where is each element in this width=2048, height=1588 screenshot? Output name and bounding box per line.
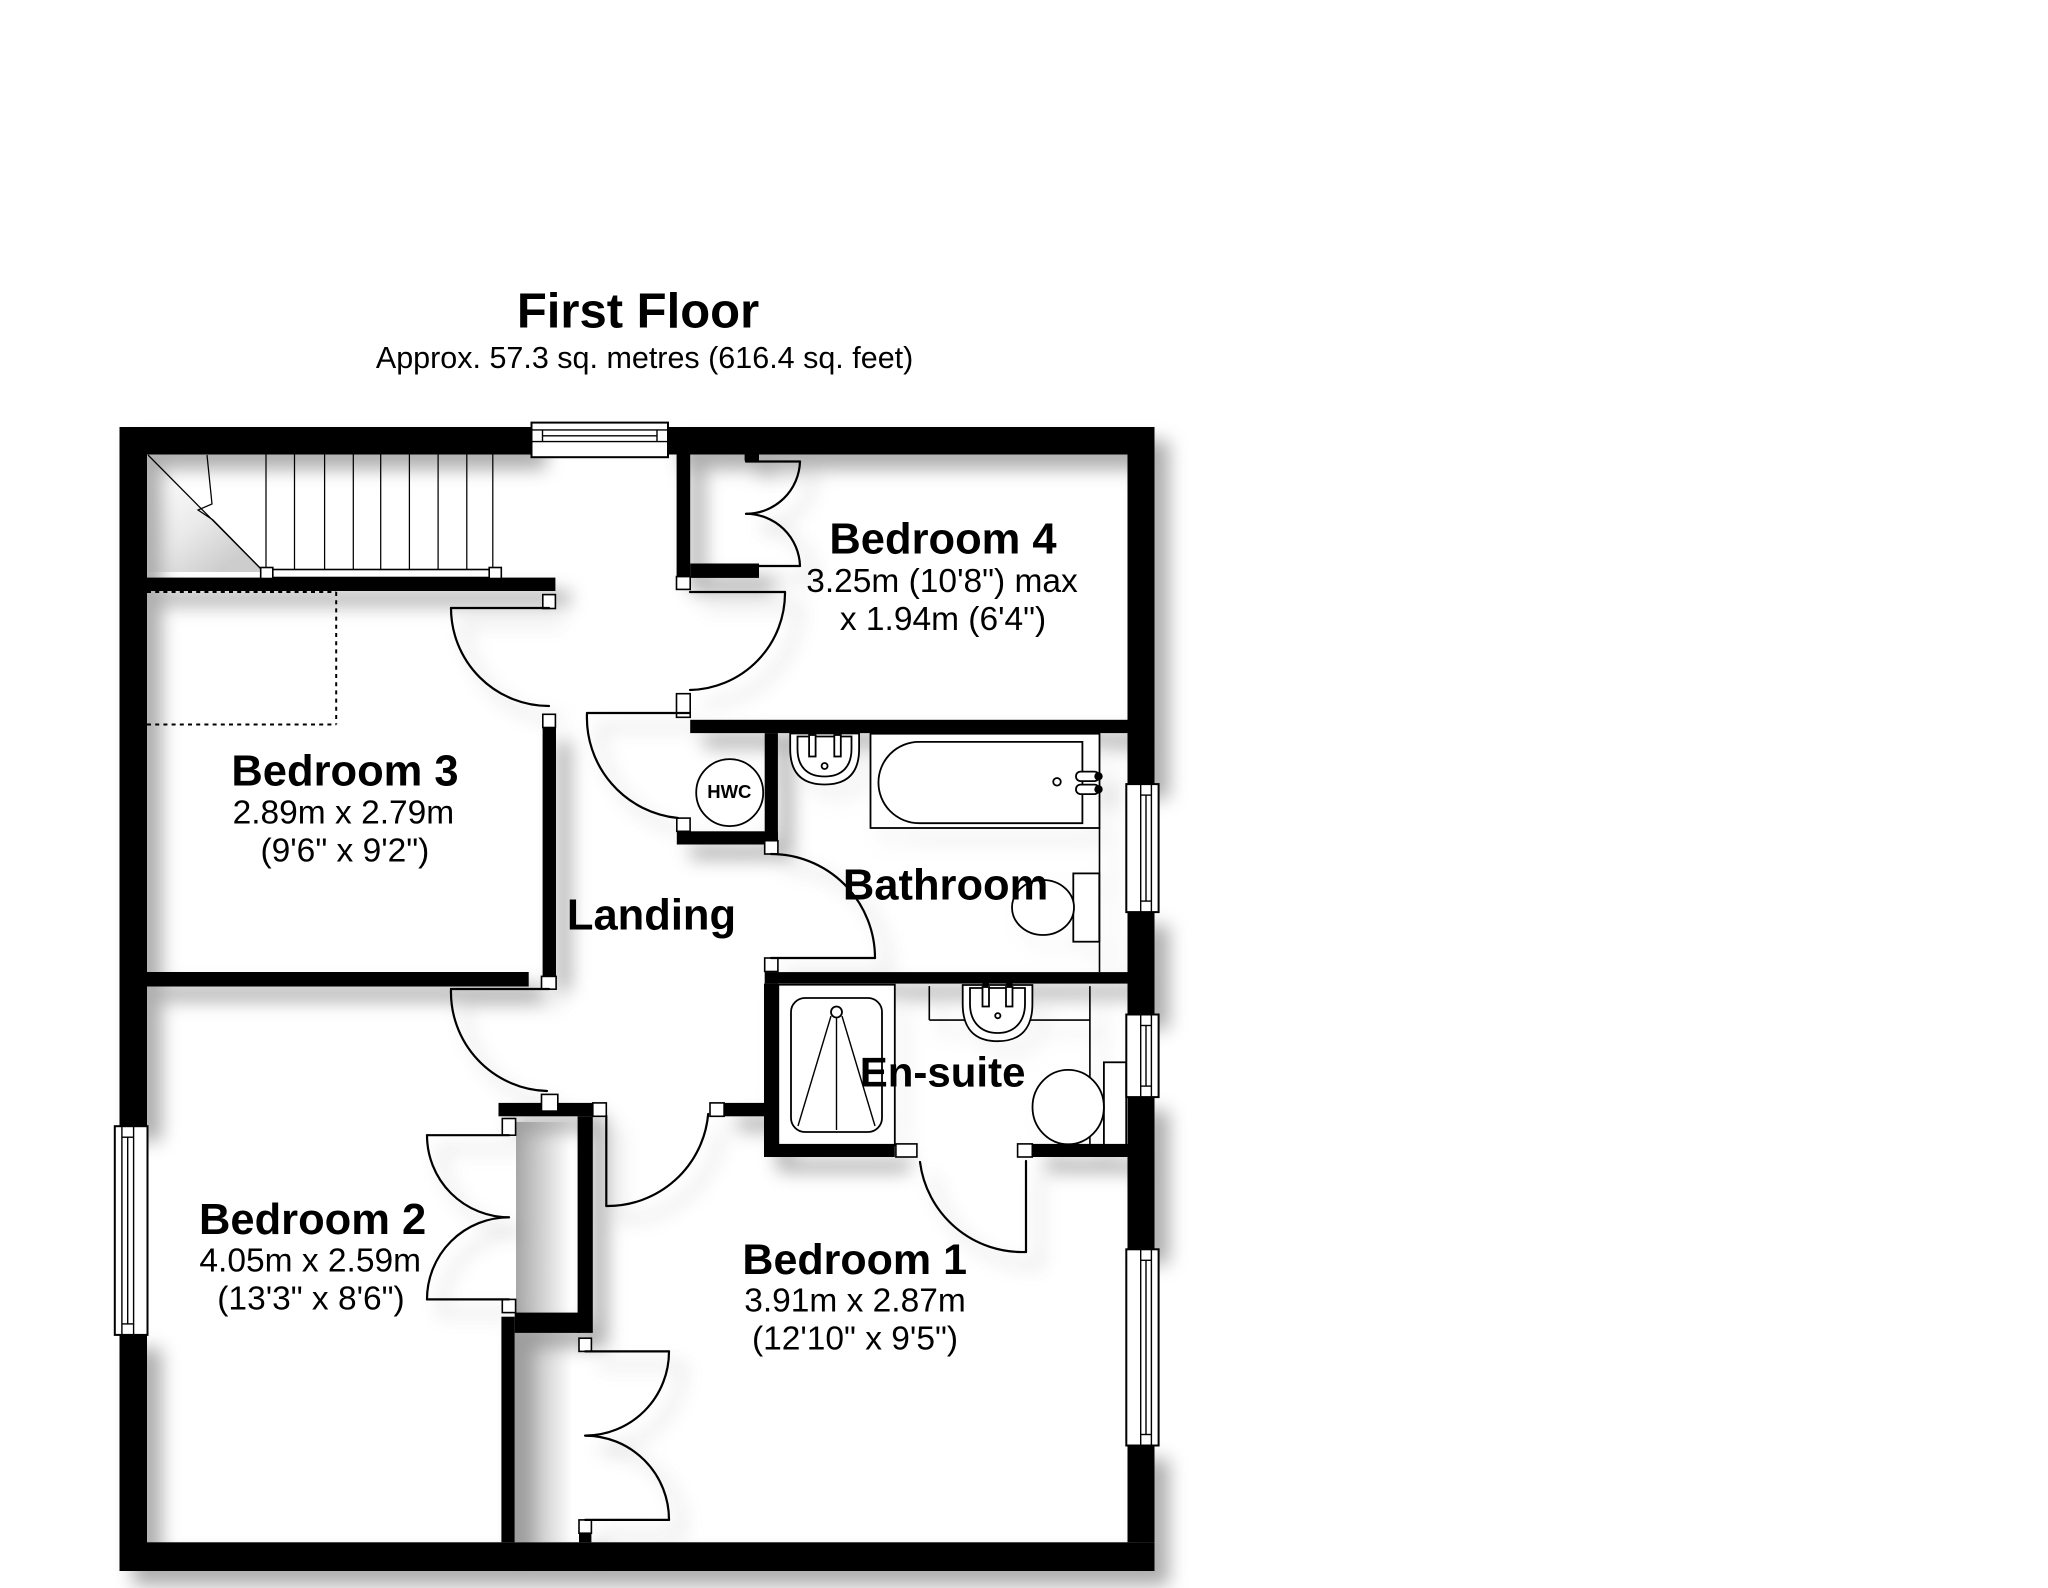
svg-text:Bedroom 3: Bedroom 3	[231, 747, 458, 795]
svg-text:(13'3" x 8'6"): (13'3" x 8'6")	[217, 1281, 404, 1318]
svg-text:(12'10" x 9'5"): (12'10" x 9'5")	[752, 1321, 958, 1358]
svg-text:2.89m x 2.79m: 2.89m x 2.79m	[233, 795, 455, 832]
svg-text:En-suite: En-suite	[860, 1049, 1026, 1096]
svg-text:Bedroom 4: Bedroom 4	[829, 516, 1056, 564]
svg-text:Bedroom 2: Bedroom 2	[199, 1196, 426, 1244]
svg-text:x 1.94m (6'4"): x 1.94m (6'4")	[840, 601, 1046, 638]
svg-text:Bathroom: Bathroom	[843, 862, 1048, 910]
svg-text:(9'6" x 9'2"): (9'6" x 9'2")	[261, 833, 430, 870]
svg-text:3.25m (10'8") max: 3.25m (10'8") max	[806, 563, 1078, 600]
svg-text:HWC: HWC	[707, 781, 751, 802]
svg-text:4.05m x 2.59m: 4.05m x 2.59m	[199, 1243, 421, 1280]
svg-text:Approx. 57.3 sq. metres (616.4: Approx. 57.3 sq. metres (616.4 sq. feet)	[376, 341, 913, 375]
svg-text:Bedroom 1: Bedroom 1	[742, 1236, 967, 1284]
svg-text:3.91m x 2.87m: 3.91m x 2.87m	[744, 1283, 966, 1320]
svg-text:First Floor: First Floor	[517, 285, 759, 339]
svg-text:Landing: Landing	[567, 892, 736, 940]
